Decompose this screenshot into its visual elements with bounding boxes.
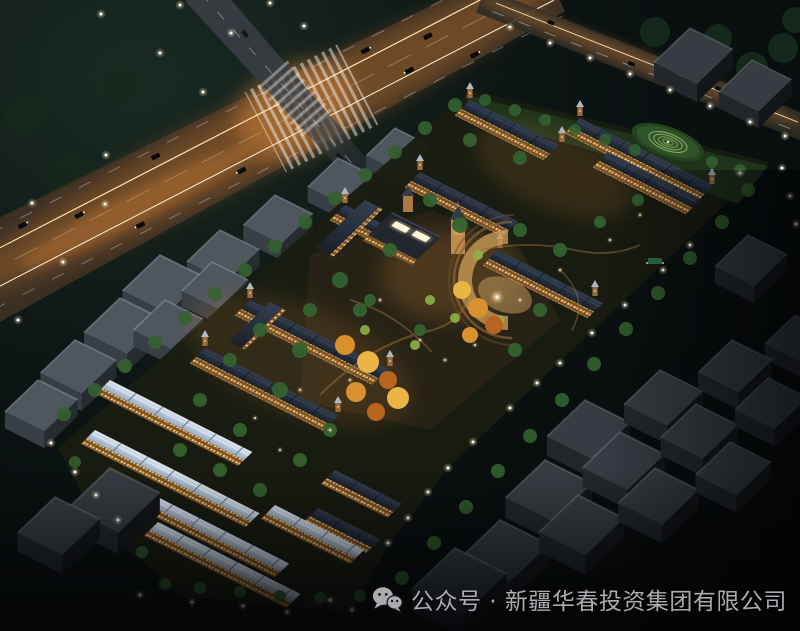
wechat-icon bbox=[372, 586, 403, 612]
architectural-rendering: 公众号 · 新疆华春投资集团有限公司 bbox=[0, 0, 800, 631]
caption-text: 公众号 · 新疆华春投资集团有限公司 bbox=[411, 582, 787, 616]
right-fade bbox=[600, 170, 800, 631]
night-scene bbox=[0, 0, 800, 631]
caption: 公众号 · 新疆华春投资集团有限公司 bbox=[372, 582, 787, 616]
